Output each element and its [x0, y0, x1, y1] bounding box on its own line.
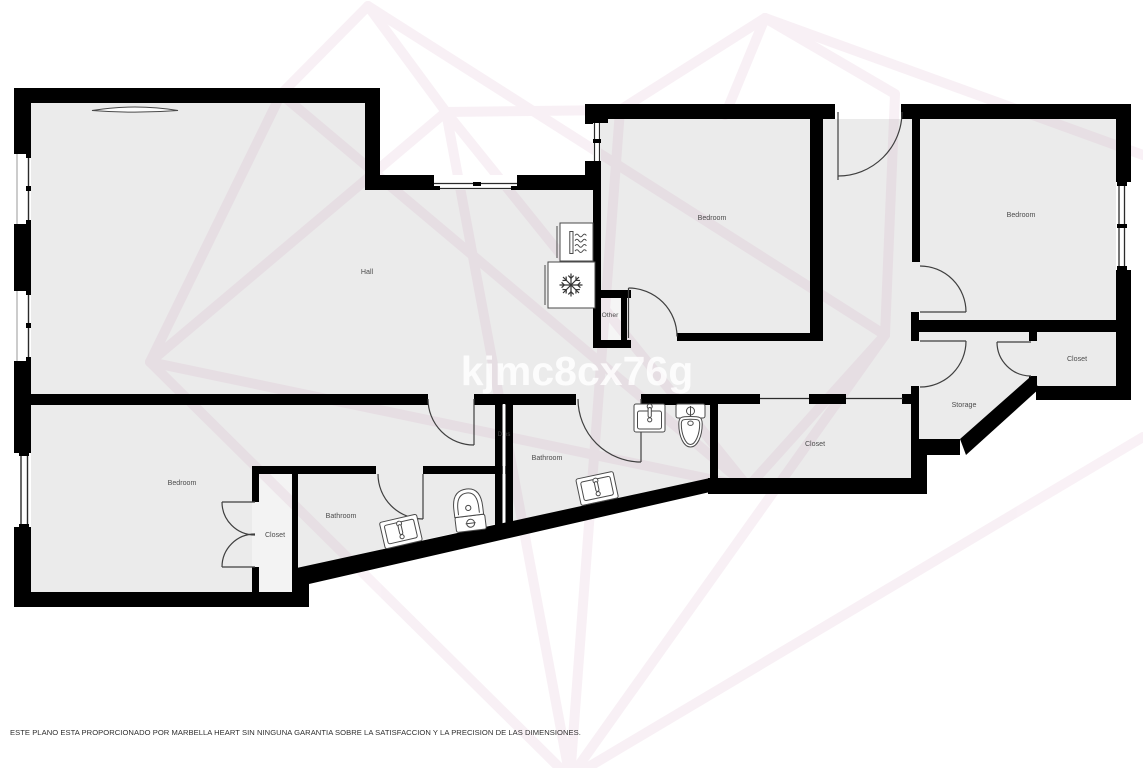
svg-text:Bathroom: Bathroom	[326, 512, 357, 520]
svg-text:Bedroom: Bedroom	[1007, 211, 1036, 219]
svg-text:Closet: Closet	[265, 531, 285, 539]
svg-text:kjmc8cx76g: kjmc8cx76g	[461, 348, 694, 394]
svg-text:Closet: Closet	[805, 440, 825, 448]
svg-text:ESTE PLANO ESTA PROPORCIONADO: ESTE PLANO ESTA PROPORCIONADO POR MARBEL…	[10, 728, 581, 737]
svg-text:Other: Other	[602, 312, 619, 319]
svg-text:Bedroom: Bedroom	[168, 479, 197, 487]
svg-text:Closet: Closet	[1067, 355, 1087, 363]
svg-text:Storage: Storage	[952, 401, 977, 409]
svg-text:Bedroom: Bedroom	[698, 214, 727, 222]
svg-text:Bathroom: Bathroom	[532, 454, 563, 462]
svg-text:Hall: Hall	[361, 268, 374, 276]
